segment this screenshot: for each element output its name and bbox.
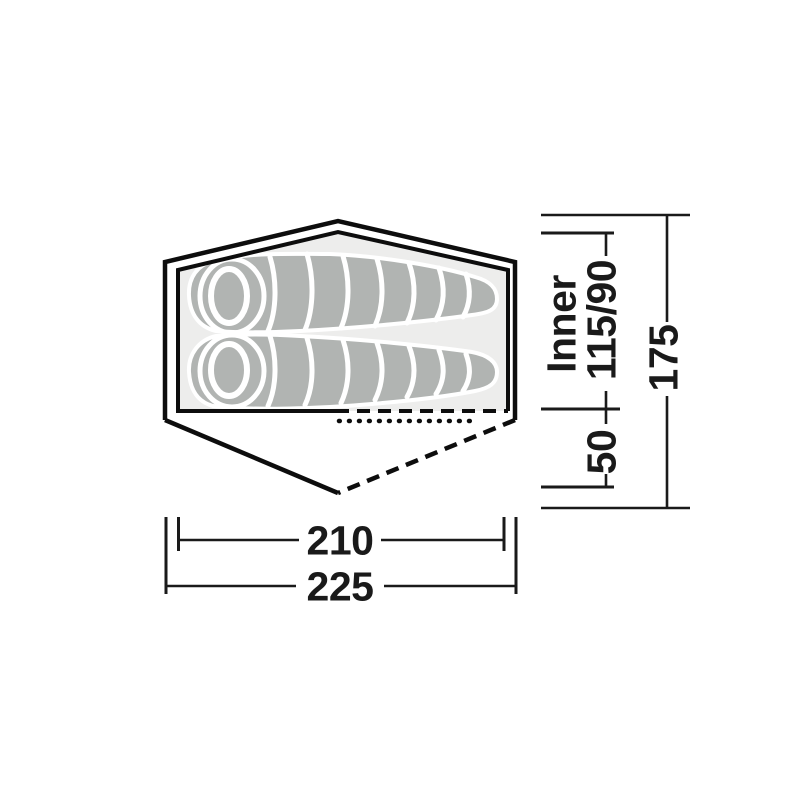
dim-total-width-value: 175 [640, 325, 686, 392]
dim-total-length-value: 225 [307, 563, 374, 609]
tent-dimension-diagram: 175 Inner 115/90 50 210 225 [0, 0, 800, 800]
dimension-group-bottom: 210 225 [166, 517, 516, 609]
dim-vestibule-depth-value: 50 [578, 430, 624, 475]
outer-tent-outline-bottom-left [165, 420, 338, 493]
diagram-svg: 175 Inner 115/90 50 210 225 [0, 0, 800, 800]
dimension-group-right: 175 Inner 115/90 50 [538, 215, 690, 508]
dim-inner-width-value: 115/90 [578, 260, 624, 380]
outer-tent-door-dashed-line [338, 420, 515, 493]
dim-inner-length-value: 210 [307, 517, 374, 563]
